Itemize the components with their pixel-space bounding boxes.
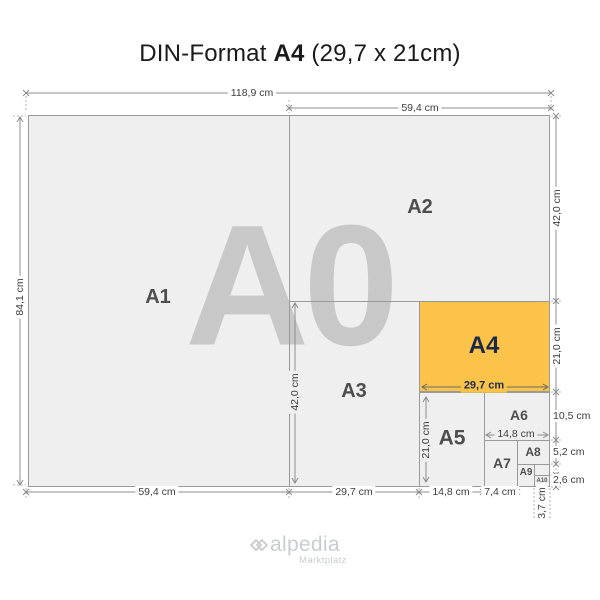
dim-right-height-a4: 21,0 cm xyxy=(551,324,563,367)
label-a3: A3 xyxy=(341,381,367,401)
alpedia-logo-icon xyxy=(249,536,269,555)
dim-inner-height-a5: 21,0 cm xyxy=(420,418,432,461)
alpedia-logo-subtext: Marktplatz xyxy=(299,555,347,566)
dim-right-height-a8: 5,2 cm xyxy=(551,446,587,458)
label-a1: A1 xyxy=(145,287,171,307)
dim-bottom-width-a5: 14,8 cm xyxy=(429,486,472,498)
label-a9: A9 xyxy=(520,468,533,478)
label-a6: A6 xyxy=(510,408,528,422)
label-a7: A7 xyxy=(493,456,511,470)
label-a8: A8 xyxy=(525,446,540,458)
label-a2: A2 xyxy=(407,197,433,217)
title-prefix: DIN-Format xyxy=(139,40,266,67)
dim-left-height-a0: 84,1 cm xyxy=(14,275,26,318)
page-title: DIN-Format A4 (29,7 x 21cm) xyxy=(0,40,600,68)
dim-bottom-width-a7: 7,4 cm xyxy=(481,486,519,498)
dim-inner-width-a6: 14,8 cm xyxy=(494,428,537,440)
dim-right-height-a10: 2,6 cm xyxy=(551,474,587,486)
dim-top-width-a2: 59,4 cm xyxy=(398,102,441,114)
dim-right-height-a6: 10,5 cm xyxy=(551,410,592,422)
dim-top-width-a0: 118,9 cm xyxy=(228,87,276,99)
title-suffix: (29,7 x 21cm) xyxy=(311,40,460,67)
label-a10: A10 xyxy=(536,478,547,484)
dim-bottom-width-a10: 3,7 cm xyxy=(536,484,548,522)
alpedia-logo-text: alpedia xyxy=(270,533,340,556)
dim-bottom-width-a1: 59,4 cm xyxy=(135,486,178,498)
dim-inner-width-a4: 29,7 cm xyxy=(461,380,507,393)
divider-a10-top xyxy=(534,475,550,476)
title-format: A4 xyxy=(273,40,304,67)
label-a4: A4 xyxy=(469,334,500,358)
label-a5: A5 xyxy=(439,428,466,449)
dim-right-height-a2: 42,0 cm xyxy=(551,186,563,229)
dim-inner-height-a3: 42,0 cm xyxy=(289,370,301,413)
dim-bottom-width-a3: 29,7 cm xyxy=(332,486,375,498)
